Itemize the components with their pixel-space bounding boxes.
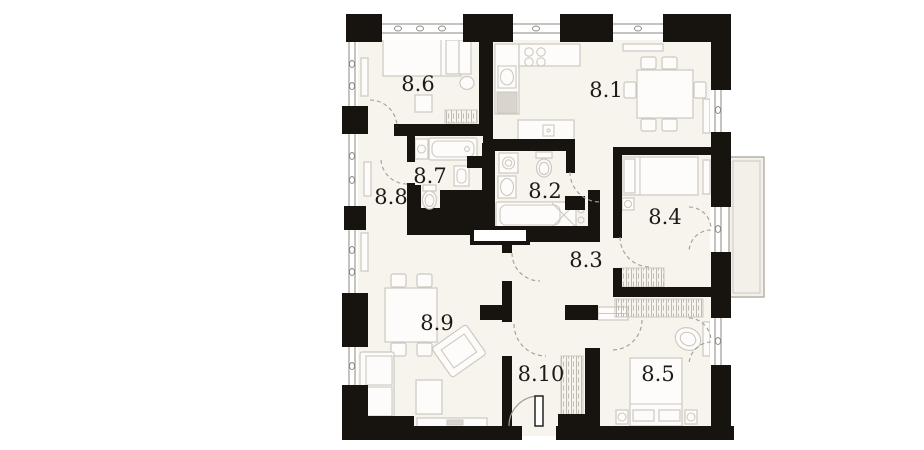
- washing-machine-icon: [415, 139, 428, 159]
- desk-icon: [459, 40, 471, 74]
- room-label-8-6: 8.6: [401, 72, 434, 96]
- nightstand-icon: [616, 410, 628, 424]
- radiator-icon: [364, 162, 371, 196]
- nightstand-icon: [622, 198, 634, 210]
- window: [344, 42, 358, 106]
- fridge-icon: [497, 92, 517, 113]
- wardrobe-icon: [615, 299, 703, 317]
- dining-table-icon: [637, 70, 693, 118]
- bed-icon: [383, 38, 461, 76]
- radiator-icon: [703, 322, 710, 356]
- radiator-icon: [361, 233, 368, 271]
- side-table-icon: [415, 95, 432, 112]
- nightstand-icon: [685, 410, 697, 424]
- room-label-8-8: 8.8: [374, 185, 407, 209]
- console-icon: [623, 44, 663, 51]
- window: [710, 318, 724, 365]
- window: [344, 347, 358, 385]
- floor-plan-page: 8.6 8.1 8.7 8.8 8.2 8.4 8.3 8.9 8.10 8.5: [0, 0, 924, 450]
- room-label-8-4: 8.4: [648, 205, 681, 229]
- room-label-8-2: 8.2: [528, 179, 561, 203]
- room-label-8-10: 8.10: [518, 362, 565, 386]
- radiator-icon: [703, 160, 710, 194]
- floor-plan-canvas: 8.6 8.1 8.7 8.8 8.2 8.4 8.3 8.9 8.10 8.5: [0, 0, 924, 450]
- window: [382, 18, 463, 40]
- toilet-icon: [423, 185, 437, 209]
- room-label-8-1: 8.1: [589, 78, 622, 102]
- radiator-icon: [361, 58, 368, 96]
- toilet-icon: [536, 152, 552, 177]
- washing-machine-icon: [499, 153, 518, 173]
- balcony: [729, 157, 764, 297]
- sink-icon: [498, 176, 516, 198]
- duct-niche: [470, 226, 530, 245]
- chair-icon: [460, 77, 474, 90]
- room-label-8-3: 8.3: [569, 248, 602, 272]
- window: [513, 18, 560, 40]
- wardrobe-icon: [445, 110, 477, 123]
- window: [613, 18, 663, 40]
- window: [710, 90, 724, 132]
- window: [344, 134, 358, 206]
- sink-icon: [454, 166, 469, 186]
- room-label-8-5: 8.5: [641, 362, 674, 386]
- window: [344, 230, 358, 293]
- room-label-8-7: 8.7: [413, 164, 446, 188]
- radiator-icon: [703, 99, 710, 133]
- room-label-8-9: 8.9: [420, 311, 453, 335]
- bed-icon: [622, 157, 698, 195]
- coffee-table-icon: [416, 380, 442, 414]
- balcony-door-window: [710, 207, 724, 252]
- wardrobe-icon: [620, 268, 664, 287]
